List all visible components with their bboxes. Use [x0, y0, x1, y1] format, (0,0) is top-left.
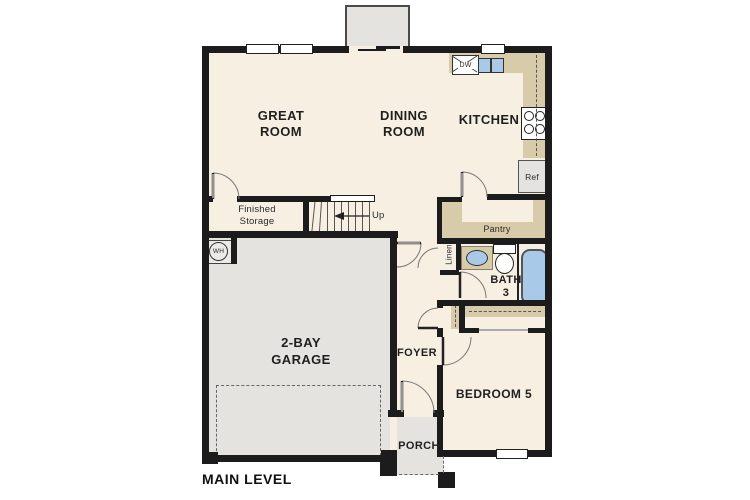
vanity-sink	[466, 250, 488, 266]
porch-post	[380, 459, 397, 476]
stair-tread	[341, 200, 342, 232]
garage-corner-block	[202, 452, 218, 464]
stair-tread	[334, 200, 335, 232]
window	[481, 44, 505, 54]
linen-label: Linen	[445, 240, 454, 270]
wall-entry	[388, 410, 404, 417]
wall-kitchen-hall	[487, 194, 545, 200]
refrigerator: Ref	[518, 160, 546, 193]
kitchen-label: KITCHEN	[429, 112, 549, 127]
bath-3-label: BATH 3	[476, 274, 536, 300]
wall-closet-bottom	[459, 328, 479, 333]
water-heater-wall-stub	[231, 238, 237, 264]
stair-tread	[362, 200, 363, 232]
pantry-walkway	[462, 200, 533, 222]
dishwasher: DW	[452, 55, 479, 75]
sink-basin-left	[478, 58, 491, 73]
main-level-label: MAIN LEVEL	[202, 471, 352, 487]
fireplace-hearth-mark	[376, 46, 400, 49]
stair-tread	[327, 200, 328, 232]
wall-entry	[433, 410, 444, 417]
wall-garage-top	[202, 231, 398, 238]
stair-tread	[369, 200, 370, 232]
finished-storage-label: Finished Storage	[212, 204, 302, 227]
foyer-closet-rod	[455, 305, 456, 327]
dishwasher-label: DW	[458, 62, 472, 69]
staircase	[309, 200, 373, 232]
window	[246, 44, 279, 54]
wall-left	[202, 46, 209, 462]
refrigerator-label: Ref	[525, 172, 539, 182]
garage-label: 2-BAY GARAGE	[241, 334, 361, 368]
up-label: Up	[372, 210, 392, 221]
wall-foyer-bedroom	[437, 300, 443, 308]
stair-tread	[319, 200, 322, 232]
stair-tread	[355, 200, 356, 232]
wall-closet-bottom	[528, 328, 545, 333]
fireplace-hearth-mark	[358, 49, 386, 51]
stair-railing	[330, 195, 375, 202]
upper-cabinet-dash-line	[536, 55, 537, 156]
wall-foyer-bedroom	[437, 328, 443, 337]
wall-bath-bottom	[437, 300, 545, 306]
foyer-label: FOYER	[387, 347, 447, 359]
window	[280, 44, 313, 54]
wall-storage-top	[202, 196, 213, 202]
wall-garage-right	[390, 238, 397, 413]
wall-pantry-left	[437, 197, 442, 244]
wall-storage-top	[237, 196, 330, 202]
pantry-label: Pantry	[452, 224, 542, 234]
garage-door-outline	[216, 385, 381, 456]
porch-edge-dashed	[443, 456, 444, 473]
fireplace-bumpout	[345, 5, 410, 50]
sink-basin-right	[491, 58, 504, 73]
stair-tread	[348, 200, 349, 232]
water-heater: WH	[209, 242, 228, 261]
floor-plan: DW Ref WH	[0, 0, 750, 500]
stair-tread	[311, 200, 315, 232]
bedroom-closet-rod	[469, 311, 541, 312]
wall-bedroom-bottom	[437, 450, 552, 457]
porch-edge-dashed	[399, 474, 439, 475]
wall-garage-bottom	[202, 455, 397, 462]
window	[496, 449, 528, 459]
water-heater-label: WH	[213, 248, 224, 255]
bedroom-5-label: BEDROOM 5	[434, 387, 554, 401]
porch-post	[438, 472, 455, 488]
closet-opening-line	[479, 329, 528, 331]
wall-foyer-bedroom	[437, 365, 443, 450]
wall-linen-bottom	[440, 270, 459, 275]
toilet-bowl	[495, 253, 514, 274]
porch-label: PORCH	[389, 440, 449, 452]
great-room-label: GREAT ROOM	[221, 108, 341, 140]
wall-linen-right	[456, 244, 461, 270]
kitchen-sink	[478, 57, 503, 73]
